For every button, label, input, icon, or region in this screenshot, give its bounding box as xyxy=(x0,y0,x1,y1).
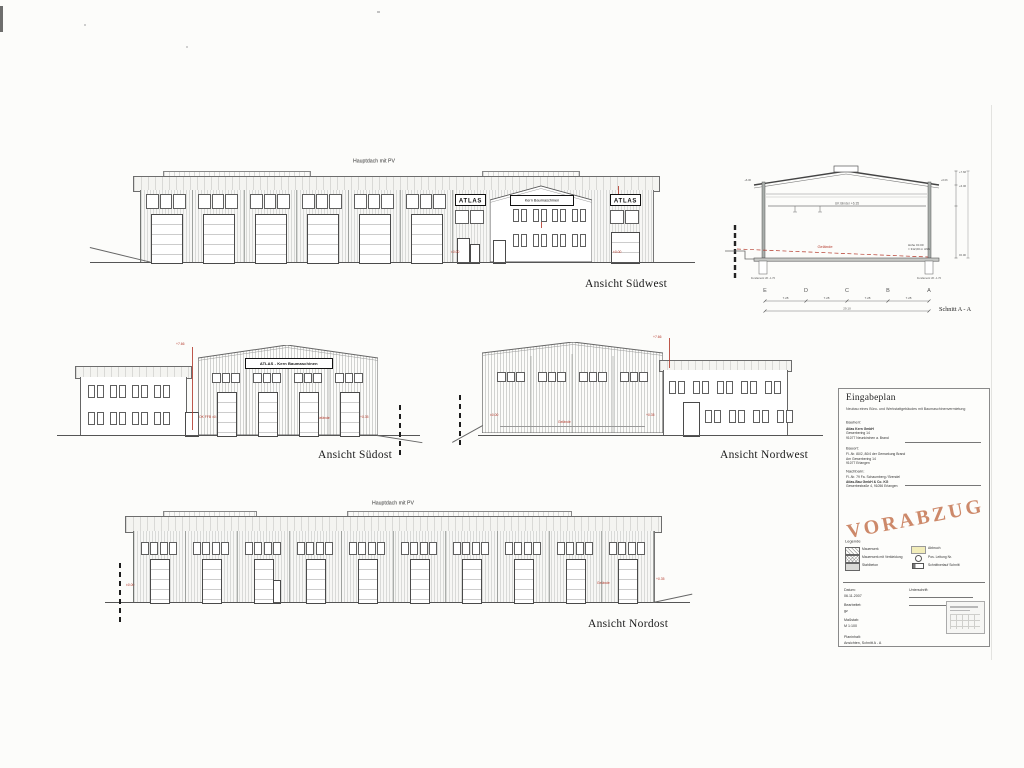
window-pane xyxy=(630,372,639,382)
window-pane xyxy=(354,373,363,383)
window-pane xyxy=(717,381,724,394)
window-pane xyxy=(566,542,574,555)
entrance-door xyxy=(493,240,506,264)
window-pane xyxy=(316,194,329,209)
window-pane xyxy=(169,542,177,555)
window-pane xyxy=(401,542,409,555)
kern-baumaschinen-sign: Kern Baumaschinen xyxy=(510,195,574,206)
window-pane xyxy=(420,194,433,209)
sectional-door xyxy=(307,214,339,264)
column-line xyxy=(400,190,401,262)
window-pane xyxy=(253,373,262,383)
column-line xyxy=(348,190,349,262)
window-pane xyxy=(354,194,367,209)
sectional-door xyxy=(566,559,586,604)
window-pane xyxy=(263,373,272,383)
sectional-door xyxy=(150,559,170,604)
legend-label: Pos. Leitung Nr. xyxy=(928,555,952,559)
vorabzug-stamp-text: VORABZUG xyxy=(846,494,987,543)
window-pane xyxy=(513,209,519,222)
window-pane xyxy=(277,194,290,209)
window-band xyxy=(552,209,566,222)
column-line xyxy=(192,190,193,262)
office-body xyxy=(663,370,788,436)
elevation-nordost-drawing: Hauptdach mit PV ±0.00 Gelände +0.35 Ans… xyxy=(100,495,700,640)
window-band xyxy=(765,381,781,394)
window-band xyxy=(572,234,586,247)
window-pane xyxy=(264,194,277,209)
foundation-label: Fundament UK -1.70 xyxy=(917,276,942,280)
bauherr-line: 91077 Neunkirchen a. Brand xyxy=(846,436,889,440)
column-line xyxy=(393,531,394,602)
legend-label: Abbruch xyxy=(928,546,941,550)
svg-text:±0.00: ±0.00 xyxy=(959,253,966,257)
terrain-line xyxy=(737,249,928,257)
window-pane xyxy=(705,410,712,423)
foundation xyxy=(759,261,767,274)
window-band xyxy=(154,412,170,425)
window-pane xyxy=(212,373,221,383)
column-line xyxy=(296,190,297,262)
legend-swatch-stahlbeton xyxy=(845,563,860,571)
scan-speck xyxy=(186,46,188,48)
window-pane xyxy=(598,372,607,382)
sectional-door xyxy=(151,214,183,264)
column-line xyxy=(497,531,498,602)
view-title: Ansicht Südost xyxy=(318,449,392,461)
datum-label: Datum: xyxy=(844,588,856,593)
column-line xyxy=(341,531,342,602)
window-pane xyxy=(572,209,578,222)
window-band xyxy=(154,385,170,398)
window-pane xyxy=(610,210,624,224)
window-pane xyxy=(198,194,211,209)
column-line xyxy=(445,531,446,602)
svg-text:+6.06: +6.06 xyxy=(959,184,967,188)
column-line xyxy=(133,531,134,602)
window-pane xyxy=(521,209,527,222)
svg-text:7.28: 7.28 xyxy=(865,296,871,300)
window-band xyxy=(533,209,547,222)
svg-text:B: B xyxy=(886,288,890,294)
window-pane xyxy=(625,210,639,224)
window-pane xyxy=(557,542,565,555)
sectional-door xyxy=(255,214,287,264)
window-band xyxy=(110,412,126,425)
level-annotation: +0.35 xyxy=(656,577,665,581)
window-pane xyxy=(637,542,645,555)
window-pane xyxy=(202,542,210,555)
entrance-door xyxy=(683,402,700,437)
window-band xyxy=(552,234,566,247)
window-pane xyxy=(231,373,240,383)
planinhalt-label: Planinhalt: xyxy=(844,635,861,640)
svg-text:7.28: 7.28 xyxy=(783,296,789,300)
terrain-annotation: Gelände xyxy=(558,420,571,424)
floor-slab xyxy=(754,258,939,261)
column-line xyxy=(185,531,186,602)
window-pane xyxy=(302,194,315,209)
window-pane xyxy=(726,381,733,394)
view-title: Ansicht Südwest xyxy=(585,278,667,290)
window-pane xyxy=(505,542,513,555)
column-line xyxy=(653,531,654,602)
window-pane xyxy=(453,542,461,555)
window-pane xyxy=(141,385,148,398)
window-pane xyxy=(335,373,344,383)
atlas-sign: ATLAS xyxy=(610,194,641,206)
window-pane xyxy=(538,372,547,382)
window-pane xyxy=(325,542,333,555)
window-band xyxy=(406,194,446,209)
window-band xyxy=(669,381,685,394)
svg-text:D: D xyxy=(804,288,808,294)
window-pane xyxy=(786,410,793,423)
window-pane xyxy=(455,210,469,224)
column-line xyxy=(452,190,453,262)
legend-title: Legende xyxy=(845,539,861,544)
window-pane xyxy=(141,542,149,555)
window-pane xyxy=(589,372,598,382)
window-band xyxy=(354,194,394,209)
window-pane xyxy=(132,385,139,398)
legend-symbol-section xyxy=(912,563,924,569)
window-pane xyxy=(572,234,578,247)
window-band xyxy=(777,410,793,423)
bauherr-label: Bauherr: xyxy=(846,420,861,425)
sectional-door xyxy=(299,392,319,437)
window-pane xyxy=(470,210,484,224)
crane-hooks xyxy=(793,206,822,212)
window-pane xyxy=(368,194,381,209)
sectional-door xyxy=(306,559,326,604)
window-pane xyxy=(576,542,584,555)
sectional-door xyxy=(462,559,482,604)
level-annotation: +0.35 xyxy=(646,413,655,417)
window-pane xyxy=(693,381,700,394)
window-band xyxy=(557,542,593,555)
window-band xyxy=(250,194,290,209)
beam-label: UK Binder +6.35 xyxy=(835,202,859,206)
signature-line xyxy=(905,485,981,486)
window-pane xyxy=(349,542,357,555)
window-pane xyxy=(97,412,104,425)
window-band xyxy=(88,412,104,425)
window-pane xyxy=(306,542,314,555)
window-band xyxy=(335,373,363,383)
window-pane xyxy=(609,542,617,555)
window-pane xyxy=(132,412,139,425)
window-pane xyxy=(88,412,95,425)
window-pane xyxy=(154,412,161,425)
atlas-sign-text: ATLAS xyxy=(459,197,482,204)
boundary-line xyxy=(119,563,121,625)
window-band xyxy=(572,209,586,222)
svg-text:E: E xyxy=(763,288,767,294)
bearbeitet-label: Bearbeitet: xyxy=(844,603,861,608)
sectional-door xyxy=(514,559,534,604)
window-band xyxy=(193,542,229,555)
window-pane xyxy=(557,372,566,382)
window-pane xyxy=(618,542,626,555)
signature-line xyxy=(909,597,973,598)
window-pane xyxy=(472,542,480,555)
window-band xyxy=(141,542,177,555)
window-band xyxy=(302,194,342,209)
eaves-dim: +6.06 xyxy=(744,178,751,182)
elevation-suedwest-drawing: Hauptdach mit PV ATLAS Kern Baumaschinen… xyxy=(85,152,700,297)
window-pane xyxy=(620,372,629,382)
sectional-door xyxy=(358,559,378,604)
window-pane xyxy=(429,542,437,555)
bauort-line: 91077 Erlangen xyxy=(846,461,870,465)
column-line xyxy=(289,531,290,602)
column-line xyxy=(601,531,602,602)
window-pane xyxy=(552,234,558,247)
window-pane xyxy=(316,542,324,555)
window-band xyxy=(132,385,148,398)
window-pane xyxy=(410,542,418,555)
scan-speck xyxy=(84,24,86,26)
svg-text:A: A xyxy=(927,288,931,294)
window-band xyxy=(538,372,566,382)
atlas-sign-text: ATLAS xyxy=(614,197,637,204)
architect-logo-stamp xyxy=(946,601,985,634)
kern-sign-text: Kern Baumaschinen xyxy=(525,198,560,202)
ground-line xyxy=(57,435,420,436)
sectional-door xyxy=(202,559,222,604)
window-pane xyxy=(160,542,168,555)
level-annotation: ±0.00 xyxy=(490,413,498,417)
window-pane xyxy=(222,373,231,383)
window-pane xyxy=(304,373,313,383)
window-band xyxy=(297,542,333,555)
atlas-kern-sign: ATLAS - Kern Baumaschinen xyxy=(245,358,333,369)
dim-line xyxy=(500,426,645,427)
window-pane xyxy=(741,381,748,394)
window-pane xyxy=(245,542,253,555)
bauherr-line: Gewerbering 14 xyxy=(846,431,870,435)
red-dim-line xyxy=(192,347,193,430)
window-pane xyxy=(628,542,636,555)
window-band xyxy=(610,210,639,224)
window-pane xyxy=(329,194,342,209)
sheet-edge xyxy=(991,105,992,660)
datum-value: 06.11.2007 xyxy=(844,594,862,599)
window-pane xyxy=(552,209,558,222)
svg-text:C: C xyxy=(845,288,849,294)
window-pane xyxy=(533,209,539,222)
atlas-sign: ATLAS xyxy=(455,194,486,206)
window-pane xyxy=(345,373,354,383)
view-title: Ansicht Nordost xyxy=(588,618,668,630)
window-band xyxy=(513,234,527,247)
window-band xyxy=(401,542,437,555)
window-pane xyxy=(524,542,532,555)
vorabzug-stamp: VORABZUG xyxy=(847,497,985,541)
bauort-line: Fl.-Nr. 80/2, 80/4 der Gemarkung Brand xyxy=(846,452,905,456)
sectional-door xyxy=(203,214,235,264)
foundation xyxy=(925,261,933,274)
window-pane xyxy=(516,372,525,382)
view-title: Schnitt A - A xyxy=(939,306,972,313)
level-annotation: ±0.00 xyxy=(613,250,621,254)
window-band xyxy=(620,372,648,382)
window-band xyxy=(513,209,527,222)
window-pane xyxy=(580,234,586,247)
terrain-annotation: Gelände xyxy=(597,581,610,585)
svg-text:7.28: 7.28 xyxy=(906,296,912,300)
window-pane xyxy=(119,385,126,398)
window-pane xyxy=(729,410,736,423)
sectional-door xyxy=(611,232,640,264)
window-pane xyxy=(541,209,547,222)
window-pane xyxy=(377,542,385,555)
sectional-door xyxy=(258,392,278,437)
window-pane xyxy=(141,412,148,425)
section-a-a-drawing: UK Binder +6.35 Gelände Höhe ±0.00 = 312… xyxy=(725,150,990,325)
sectional-door xyxy=(254,559,274,604)
window-pane xyxy=(163,412,170,425)
svg-text:+7.66: +7.66 xyxy=(959,170,967,174)
window-pane xyxy=(119,412,126,425)
window-pane xyxy=(163,385,170,398)
column-line xyxy=(244,190,245,262)
window-pane xyxy=(513,234,519,247)
sectional-door xyxy=(217,392,237,437)
dimension-chain: 7.28 7.28 7.28 7.28 29.10 xyxy=(764,296,931,313)
column-line xyxy=(140,190,141,262)
window-pane xyxy=(313,373,322,383)
window-pane xyxy=(433,194,446,209)
level-annotation: +0.35 xyxy=(360,415,369,419)
legend-swatch-verkleidung xyxy=(845,555,860,563)
window-band xyxy=(453,542,489,555)
window-band xyxy=(349,542,385,555)
eaves-dim: +6.06 xyxy=(941,178,948,182)
height-note: = 312,00 m üNN xyxy=(908,247,930,251)
window-band xyxy=(132,412,148,425)
window-pane xyxy=(368,542,376,555)
logo-bar xyxy=(950,606,978,608)
window-pane xyxy=(110,385,117,398)
window-pane xyxy=(273,542,281,555)
window-pane xyxy=(225,194,238,209)
window-pane xyxy=(753,410,760,423)
window-pane xyxy=(88,385,95,398)
window-pane xyxy=(738,410,745,423)
rooflight xyxy=(834,166,858,172)
sectional-door xyxy=(359,214,391,264)
legend-swatch-abbruch xyxy=(911,546,926,554)
ground-line xyxy=(478,435,823,436)
window-band xyxy=(729,410,745,423)
window-pane xyxy=(173,194,186,209)
legend-swatch-mauerwerk xyxy=(845,547,860,555)
plan-title: Eingabeplan xyxy=(846,393,896,403)
divider-line xyxy=(843,582,985,583)
scan-streak xyxy=(0,6,3,32)
window-pane xyxy=(212,542,220,555)
sectional-door xyxy=(411,214,443,264)
window-band xyxy=(497,372,525,382)
height-annotation: +7.66 xyxy=(176,342,185,346)
legend-symbol-circle xyxy=(915,555,922,562)
window-band xyxy=(741,381,757,394)
sidelight-window xyxy=(470,244,480,264)
svg-text:29.10: 29.10 xyxy=(843,307,851,311)
ground-line xyxy=(105,602,690,603)
nachbarn-line: Gewerbestraße 4, 91056 Erlangen xyxy=(846,484,898,488)
window-pane xyxy=(212,194,225,209)
window-pane xyxy=(294,373,303,383)
window-pane xyxy=(702,381,709,394)
window-band xyxy=(198,194,238,209)
window-pane xyxy=(639,372,648,382)
window-pane xyxy=(507,372,516,382)
svg-text:7.28: 7.28 xyxy=(824,296,830,300)
window-pane xyxy=(579,372,588,382)
boundary-line xyxy=(399,405,401,455)
window-pane xyxy=(160,194,173,209)
window-band xyxy=(253,373,281,383)
window-band xyxy=(505,542,541,555)
window-pane xyxy=(580,209,586,222)
window-band xyxy=(609,542,645,555)
sectional-door xyxy=(340,392,360,437)
window-pane xyxy=(146,194,159,209)
height-dimension-chain: +7.66 +6.06 ±0.00 xyxy=(955,170,970,258)
title-block: Eingabeplan Neubau eines Büro- und Werks… xyxy=(838,388,990,647)
plan-subtitle: Neubau eines Büro- und Werkstattgebäudes… xyxy=(846,407,965,412)
window-pane xyxy=(548,372,557,382)
nachbarn-label: Nachbarn: xyxy=(846,469,864,474)
roof-note: Hauptdach mit PV xyxy=(353,158,395,165)
massstab-label: Maßstab: xyxy=(844,618,859,623)
window-pane xyxy=(406,194,419,209)
planinhalt-value: Ansichten, Schnitt A - A xyxy=(844,641,881,646)
signature-line xyxy=(905,442,981,443)
window-pane xyxy=(110,412,117,425)
roof-line xyxy=(754,171,939,185)
red-dim-line xyxy=(669,338,670,368)
window-pane xyxy=(481,542,489,555)
logo-grid xyxy=(950,614,980,629)
scan-speck xyxy=(377,11,380,13)
bauort-label: Bauort: xyxy=(846,446,859,451)
atlas-kern-sign-text: ATLAS - Kern Baumaschinen xyxy=(260,361,318,366)
legend-label: Stahlbeton xyxy=(862,563,878,567)
window-pane xyxy=(765,381,772,394)
window-pane xyxy=(762,410,769,423)
window-pane xyxy=(250,194,263,209)
window-pane xyxy=(521,234,527,247)
window-pane xyxy=(533,542,541,555)
section-svg: UK Binder +6.35 Gelände Höhe ±0.00 = 312… xyxy=(725,150,990,325)
elevation-nordwest-drawing: +7.66 ±0.00 Gelände +0.35 Ansicht Nordwe… xyxy=(450,335,824,467)
ground-slope xyxy=(452,425,483,443)
window-band xyxy=(579,372,607,382)
window-pane xyxy=(297,542,305,555)
window-pane xyxy=(560,234,566,247)
bearbeitet-value: gz xyxy=(844,609,848,614)
legend-label: Mauerwerk xyxy=(862,547,879,551)
window-pane xyxy=(462,542,470,555)
nachbarn-line: Fl.-Nr. 79 Fa. Schaumberg / Brendel xyxy=(846,475,900,479)
window-pane xyxy=(533,234,539,247)
window-band xyxy=(88,385,104,398)
wall-section xyxy=(762,182,765,258)
